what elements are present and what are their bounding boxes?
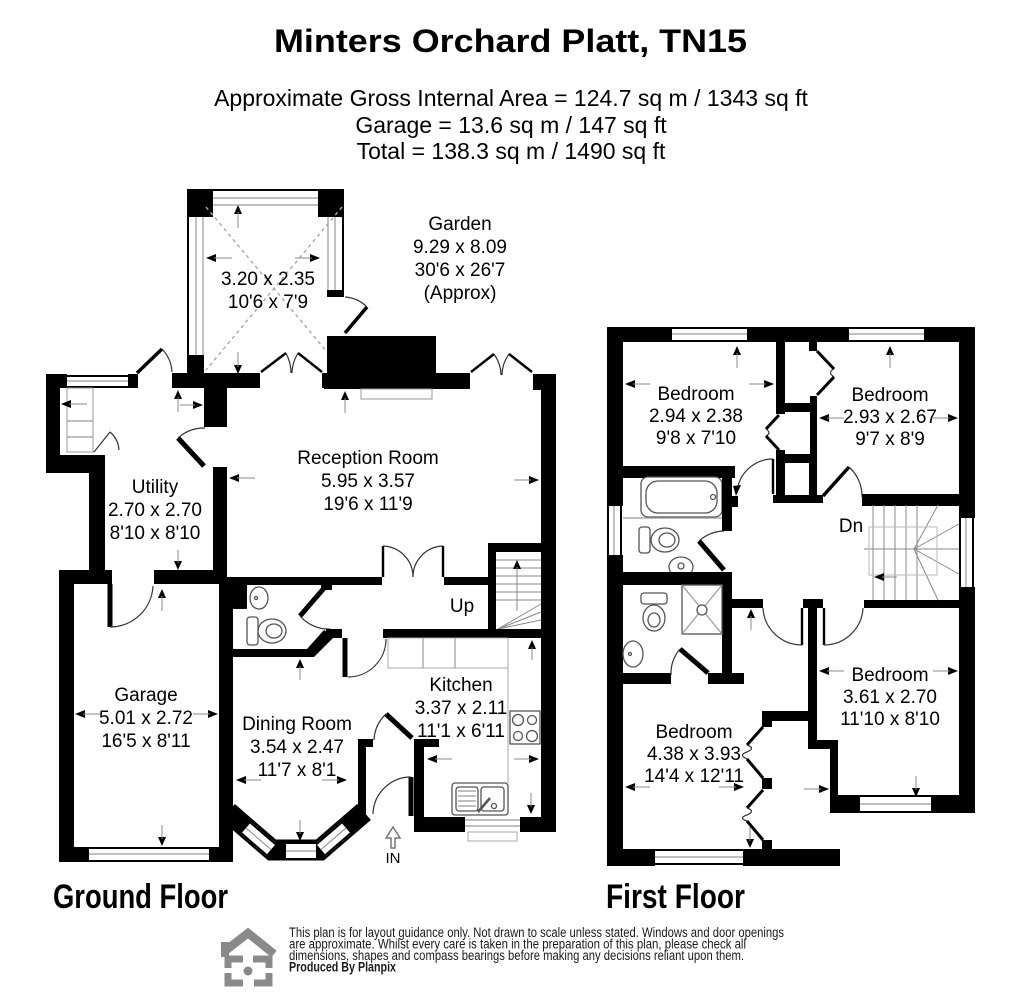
- svg-text:Bedroom: Bedroom: [851, 665, 928, 686]
- svg-text:11'10 x 8'10: 11'10 x 8'10: [840, 709, 940, 730]
- svg-text:11'7 x 8'1: 11'7 x 8'1: [258, 760, 337, 781]
- svg-text:4.38 x 3.93: 4.38 x 3.93: [647, 744, 741, 765]
- svg-text:Utility: Utility: [132, 477, 179, 498]
- svg-text:Garage = 13.6 sq m / 147 sq ft: Garage = 13.6 sq m / 147 sq ft: [355, 112, 667, 138]
- svg-text:Kitchen: Kitchen: [429, 675, 492, 696]
- svg-text:3.54 x 2.47: 3.54 x 2.47: [250, 737, 344, 758]
- svg-text:5.01 x 2.72: 5.01 x 2.72: [99, 708, 193, 729]
- svg-text:2.94 x 2.38: 2.94 x 2.38: [649, 406, 743, 427]
- svg-text:2.93 x 2.67: 2.93 x 2.67: [843, 407, 937, 428]
- svg-text:9'7 x 8'9: 9'7 x 8'9: [855, 429, 925, 450]
- svg-text:Total = 138.3 sq m / 1490 sq f: Total = 138.3 sq m / 1490 sq ft: [357, 138, 666, 164]
- svg-text:2.70 x 2.70: 2.70 x 2.70: [108, 500, 202, 521]
- svg-text:Up: Up: [450, 596, 474, 617]
- svg-text:Reception Room: Reception Room: [297, 448, 439, 469]
- svg-text:5.95 x 3.57: 5.95 x 3.57: [321, 471, 415, 492]
- svg-text:Ground Floor: Ground Floor: [53, 878, 228, 916]
- svg-text:14'4 x 12'11: 14'4 x 12'11: [644, 766, 744, 787]
- svg-text:3.37 x 2.11: 3.37 x 2.11: [415, 698, 508, 719]
- svg-text:(Approx): (Approx): [424, 283, 497, 304]
- svg-text:Garage: Garage: [114, 685, 177, 706]
- svg-text:10'6 x 7'9: 10'6 x 7'9: [228, 292, 308, 313]
- svg-text:Bedroom: Bedroom: [657, 384, 734, 405]
- svg-text:19'6 x 11'9: 19'6 x 11'9: [323, 494, 412, 515]
- svg-text:30'6 x 26'7: 30'6 x 26'7: [415, 260, 506, 281]
- svg-text:3.61 x 2.70: 3.61 x 2.70: [843, 687, 937, 708]
- svg-text:11'1 x 6'11: 11'1 x 6'11: [417, 721, 505, 742]
- svg-text:Dn: Dn: [839, 516, 863, 537]
- svg-text:Produced By Planpix: Produced By Planpix: [289, 960, 396, 975]
- svg-text:16'5 x 8'11: 16'5 x 8'11: [101, 731, 190, 752]
- svg-text:8'10 x 8'10: 8'10 x 8'10: [110, 523, 201, 544]
- svg-text:Bedroom: Bedroom: [655, 722, 732, 743]
- svg-text:9'8 x 7'10: 9'8 x 7'10: [656, 428, 736, 449]
- svg-text:Dining Room: Dining Room: [242, 714, 352, 735]
- svg-text:Garden: Garden: [428, 214, 491, 235]
- svg-text:Bedroom: Bedroom: [851, 385, 928, 406]
- svg-text:Approximate Gross Internal Are: Approximate Gross Internal Area = 124.7 …: [214, 85, 808, 111]
- svg-text:First Floor: First Floor: [606, 878, 745, 916]
- svg-text:IN: IN: [386, 850, 401, 867]
- svg-text:3.20 x 2.35: 3.20 x 2.35: [221, 269, 315, 290]
- svg-text:Minters Orchard Platt, TN15: Minters Orchard Platt, TN15: [274, 23, 747, 59]
- svg-text:9.29 x 8.09: 9.29 x 8.09: [413, 237, 507, 258]
